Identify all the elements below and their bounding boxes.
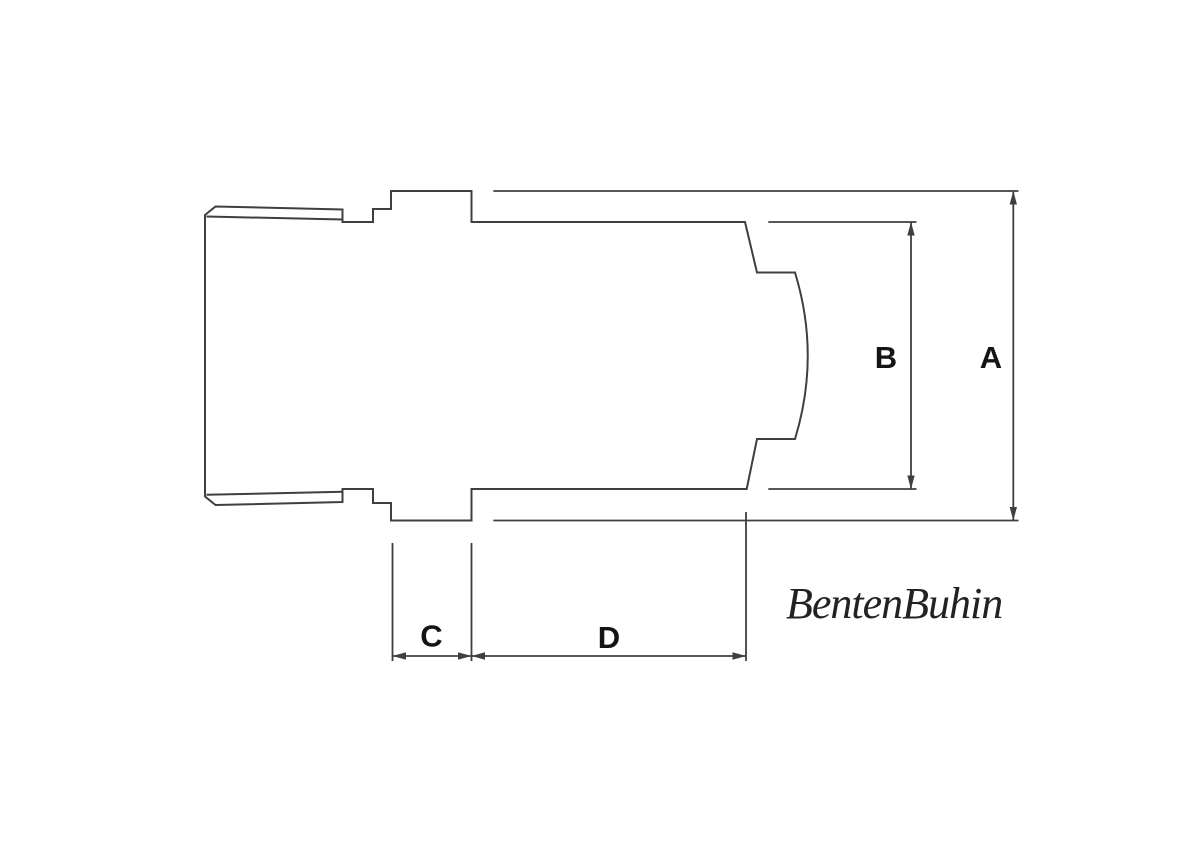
thread-taper-line-top: [207, 217, 343, 220]
dim-label-c: C: [420, 619, 442, 654]
dim-label-d: D: [598, 620, 620, 655]
dim-c-arrow-left: [393, 652, 407, 659]
dim-c-arrow-right: [458, 652, 472, 659]
dim-d-arrow-right: [733, 652, 747, 659]
brand-wordmark: BentenBuhin: [786, 579, 1002, 628]
dim-d-arrow-left: [472, 652, 486, 659]
dim-label-a: A: [980, 340, 1002, 375]
dim-label-b: B: [875, 340, 897, 375]
part-outline: [205, 191, 808, 521]
dim-b-arrow-up: [907, 222, 914, 236]
thread-taper-line-bottom: [207, 492, 343, 495]
drawing-canvas: A B C D BentenBuhin: [0, 0, 1200, 848]
dim-a-arrow-up: [1010, 191, 1017, 205]
dim-b-arrow-down: [907, 476, 914, 490]
dim-a-arrow-down: [1010, 507, 1017, 521]
technical-drawing: A B C D BentenBuhin: [0, 0, 1200, 848]
